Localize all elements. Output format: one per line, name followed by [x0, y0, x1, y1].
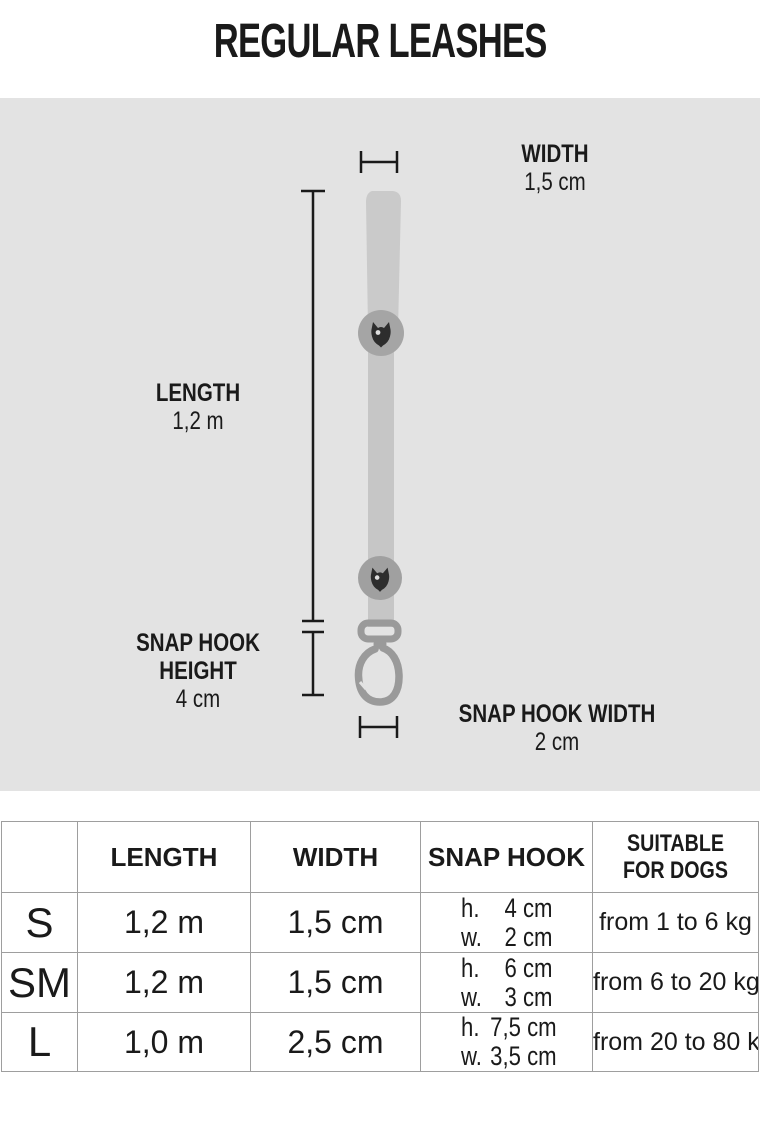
size-diagram: WIDTH 1,5 cm LENGTH 1,2 m SNAP HOOK HEIG…: [0, 98, 760, 791]
length-value: 1,2 m: [116, 407, 280, 435]
snap-hook-eyelet: [361, 623, 398, 639]
cell-size: SM: [2, 953, 78, 1013]
snap-hook-height-label: SNAP HOOK: [116, 629, 280, 657]
table-row: S 1,2 m 1,5 cm h.4 cm w.2 cm from 1 to 6…: [2, 893, 759, 953]
table-header-row: LENGTH WIDTH SNAP HOOK SUITABLE FOR DOGS: [2, 822, 759, 893]
snap-hook-height-measure-line: [302, 632, 324, 695]
size-table: LENGTH WIDTH SNAP HOOK SUITABLE FOR DOGS…: [1, 821, 759, 1072]
cell-length: 1,2 m: [78, 893, 251, 953]
length-callout: LENGTH 1,2 m: [98, 379, 298, 435]
cell-suitable: from 20 to 80 kg: [593, 1013, 759, 1072]
table-header-snap-hook: SNAP HOOK: [421, 822, 593, 893]
table-header-width: WIDTH: [251, 822, 421, 893]
length-label: LENGTH: [116, 379, 280, 407]
snap-hook-height-value: 4 cm: [116, 685, 280, 713]
width-value: 1,5 cm: [473, 168, 637, 196]
table-header-suitable: SUITABLE FOR DOGS: [593, 822, 759, 893]
cell-suitable: from 1 to 6 kg: [593, 893, 759, 953]
snap-hook-height-label: HEIGHT: [116, 657, 280, 685]
width-measure-bracket: [361, 151, 397, 173]
page-title: REGULAR LEASHES: [0, 16, 760, 68]
snap-hook-width-label: SNAP HOOK WIDTH: [459, 700, 656, 728]
width-callout: WIDTH 1,5 cm: [455, 140, 655, 196]
cell-width: 1,5 cm: [251, 953, 421, 1013]
cell-snap-hook: h.7,5 cm w.3,5 cm: [421, 1013, 593, 1072]
cell-snap-hook: h.4 cm w.2 cm: [421, 893, 593, 953]
length-measure-line: [301, 191, 325, 621]
table-header-size: [2, 822, 78, 893]
cell-length: 1,2 m: [78, 953, 251, 1013]
table-row: SM 1,2 m 1,5 cm h.6 cm w.3 cm from 6 to …: [2, 953, 759, 1013]
width-label: WIDTH: [473, 140, 637, 168]
snap-hook-width-callout: SNAP HOOK WIDTH 2 cm: [437, 700, 677, 756]
snap-hook-width-value: 2 cm: [459, 728, 656, 756]
snap-hook-height-callout: SNAP HOOK HEIGHT 4 cm: [98, 629, 298, 713]
leash-handle: [366, 191, 401, 330]
cell-size: L: [2, 1013, 78, 1072]
cell-width: 1,5 cm: [251, 893, 421, 953]
cell-width: 2,5 cm: [251, 1013, 421, 1072]
table-header-length: LENGTH: [78, 822, 251, 893]
snap-hook-carabiner: [358, 648, 399, 702]
cell-length: 1,0 m: [78, 1013, 251, 1072]
cell-size: S: [2, 893, 78, 953]
cell-suitable: from 6 to 20 kg: [593, 953, 759, 1013]
snap-hook-width-bracket: [360, 716, 397, 738]
cell-snap-hook: h.6 cm w.3 cm: [421, 953, 593, 1013]
table-row: L 1,0 m 2,5 cm h.7,5 cm w.3,5 cm from 20…: [2, 1013, 759, 1072]
